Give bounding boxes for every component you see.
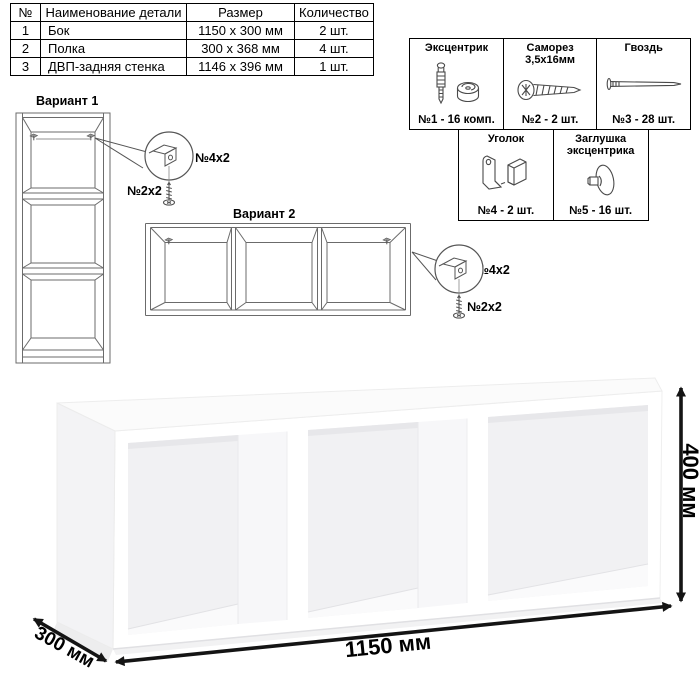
variant2-cabinet-drawing bbox=[146, 224, 411, 316]
table-row: 2 Полка 300 х 368 мм 4 шт. bbox=[11, 40, 374, 58]
cell-size: 300 х 368 мм bbox=[187, 40, 295, 58]
header-num: № bbox=[11, 4, 41, 22]
hardware-subtitle: 3,5х16мм bbox=[525, 54, 575, 66]
hardware-title: Эксцентрик bbox=[425, 42, 488, 54]
cell-name: Бок bbox=[41, 22, 187, 40]
variant2-callout-leader bbox=[412, 252, 438, 280]
variant1-callout-leader bbox=[95, 138, 147, 168]
cell-qty: 2 шт. bbox=[295, 22, 374, 40]
cell-name: ДВП-задняя стенка bbox=[41, 58, 187, 76]
cell-qty: 4 шт. bbox=[295, 40, 374, 58]
cell-num: 2 bbox=[11, 40, 41, 58]
bracket-mark bbox=[383, 238, 391, 244]
header-size: Размер bbox=[187, 4, 295, 22]
hardware-title: Саморез bbox=[525, 42, 575, 54]
table-row: 1 Бок 1150 х 300 мм 2 шт. bbox=[11, 22, 374, 40]
compartment-2 bbox=[308, 422, 418, 618]
compartment-1 bbox=[128, 435, 238, 635]
cell-size: 1146 х 396 мм bbox=[187, 58, 295, 76]
parts-table: № Наименование детали Размер Количество … bbox=[10, 3, 374, 76]
variant2-callout bbox=[435, 245, 483, 318]
variants-drawing bbox=[0, 90, 700, 370]
partition-1 bbox=[238, 430, 308, 624]
cell-num: 1 bbox=[11, 22, 41, 40]
header-name: Наименование детали bbox=[41, 4, 187, 22]
partition-2 bbox=[418, 417, 488, 608]
cell-name: Полка bbox=[41, 40, 187, 58]
variant1-callout bbox=[145, 132, 193, 205]
variant1-cabinet-drawing bbox=[16, 113, 110, 363]
header-qty: Количество bbox=[295, 4, 374, 22]
height-dimension-label: 400 мм bbox=[677, 435, 700, 527]
cell-size: 1150 х 300 мм bbox=[187, 22, 295, 40]
table-header-row: № Наименование детали Размер Количество bbox=[11, 4, 374, 22]
compartment-3 bbox=[488, 405, 648, 601]
table-row: 3 ДВП-задняя стенка 1146 х 396 мм 1 шт. bbox=[11, 58, 374, 76]
hardware-title: Гвоздь bbox=[625, 42, 663, 54]
bracket-mark bbox=[165, 238, 173, 244]
cell-num: 3 bbox=[11, 58, 41, 76]
cell-qty: 1 шт. bbox=[295, 58, 374, 76]
